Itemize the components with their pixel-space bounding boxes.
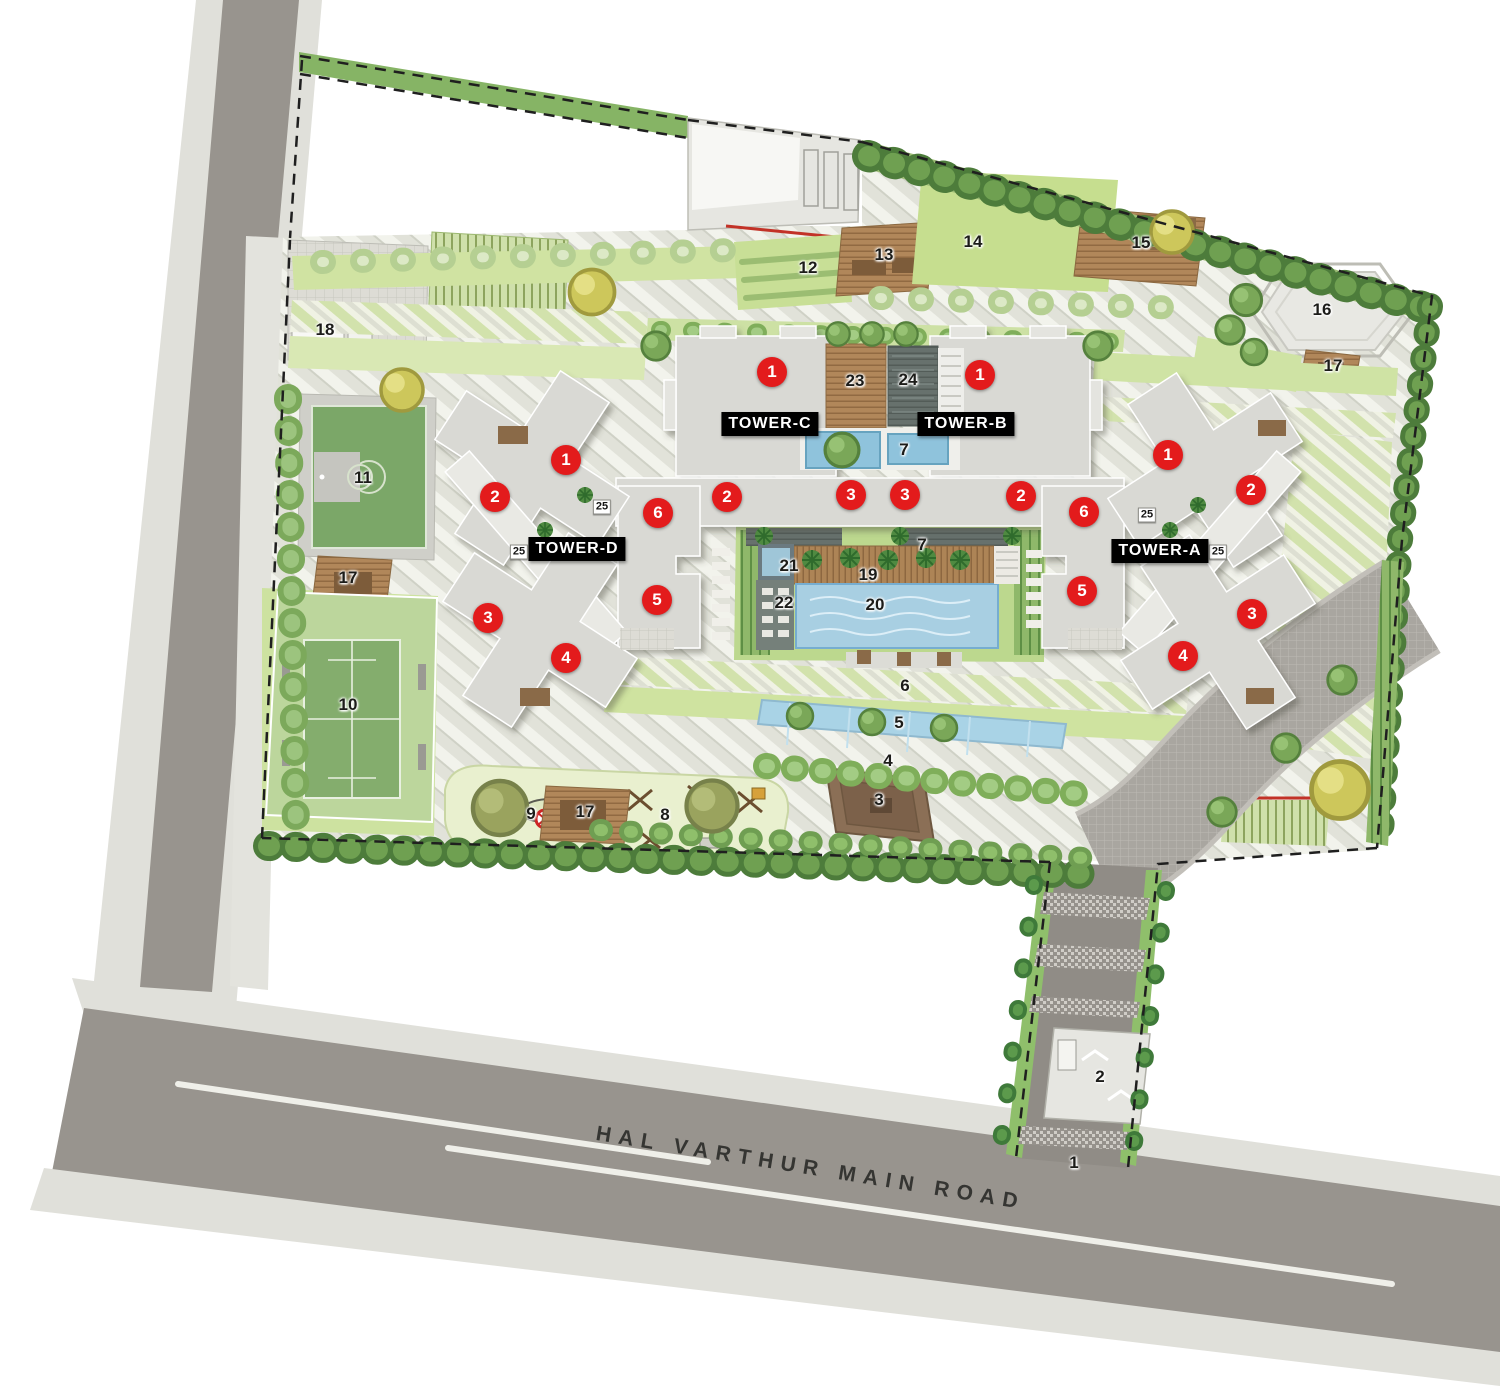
amenity-marker-17: 17 xyxy=(339,568,358,588)
amenity-marker-3: 3 xyxy=(874,790,883,810)
amenity-marker-23: 23 xyxy=(846,371,865,391)
unit-marker-3: 3 xyxy=(473,603,503,633)
amenity-marker-17: 17 xyxy=(576,802,595,822)
amenity-marker-17: 17 xyxy=(1324,356,1343,376)
tower-label-tower-a: TOWER-A xyxy=(1111,539,1208,563)
amenity-marker-14: 14 xyxy=(964,232,983,252)
unit-marker-2: 2 xyxy=(712,482,742,512)
unit-marker-5: 5 xyxy=(642,585,672,615)
amenity-marker-6: 6 xyxy=(900,676,909,696)
unit-marker-1: 1 xyxy=(757,357,787,387)
amenity-marker-5: 5 xyxy=(894,713,903,733)
amenity-marker-11: 11 xyxy=(354,468,372,488)
amenity-marker-16: 16 xyxy=(1313,300,1332,320)
unit-marker-3: 3 xyxy=(836,480,866,510)
amenity-marker-9: 9 xyxy=(526,804,535,824)
amenity-marker-21: 21 xyxy=(780,556,799,576)
amenity-marker-8: 8 xyxy=(660,805,669,825)
unit-marker-4: 4 xyxy=(551,643,581,673)
amenity-marker-4: 4 xyxy=(883,751,892,771)
site-plan-canvas: 1123326565123412341234567789101112131415… xyxy=(0,0,1500,1386)
labels-layer: 1123326565123412341234567789101112131415… xyxy=(0,0,1500,1386)
tag-marker-25: 25 xyxy=(1209,545,1227,560)
unit-marker-6: 6 xyxy=(1069,497,1099,527)
amenity-marker-12: 12 xyxy=(799,258,818,278)
amenity-marker-13: 13 xyxy=(875,245,894,265)
unit-marker-1: 1 xyxy=(551,445,581,475)
amenity-marker-19: 19 xyxy=(859,565,878,585)
amenity-marker-7: 7 xyxy=(899,440,908,460)
tower-label-tower-b: TOWER-B xyxy=(917,412,1014,436)
amenity-marker-10: 10 xyxy=(339,695,358,715)
unit-marker-5: 5 xyxy=(1067,576,1097,606)
amenity-marker-15: 15 xyxy=(1132,233,1151,253)
unit-marker-2: 2 xyxy=(480,482,510,512)
tag-marker-25: 25 xyxy=(510,545,528,560)
tower-label-tower-c: TOWER-C xyxy=(721,412,818,436)
amenity-marker-20: 20 xyxy=(866,595,885,615)
unit-marker-3: 3 xyxy=(1237,599,1267,629)
amenity-marker-24: 24 xyxy=(899,370,918,390)
amenity-marker-18: 18 xyxy=(316,320,335,340)
unit-marker-2: 2 xyxy=(1236,475,1266,505)
amenity-marker-7: 7 xyxy=(917,535,926,555)
tag-marker-25: 25 xyxy=(593,500,611,515)
unit-marker-1: 1 xyxy=(1153,440,1183,470)
amenity-marker-1: 1 xyxy=(1069,1153,1078,1173)
unit-marker-4: 4 xyxy=(1168,641,1198,671)
unit-marker-6: 6 xyxy=(643,498,673,528)
amenity-marker-2: 2 xyxy=(1095,1067,1104,1087)
tag-marker-25: 25 xyxy=(1138,508,1156,523)
unit-marker-1: 1 xyxy=(965,360,995,390)
tower-label-tower-d: TOWER-D xyxy=(528,537,625,561)
unit-marker-2: 2 xyxy=(1006,481,1036,511)
amenity-marker-22: 22 xyxy=(775,593,794,613)
unit-marker-3: 3 xyxy=(890,480,920,510)
